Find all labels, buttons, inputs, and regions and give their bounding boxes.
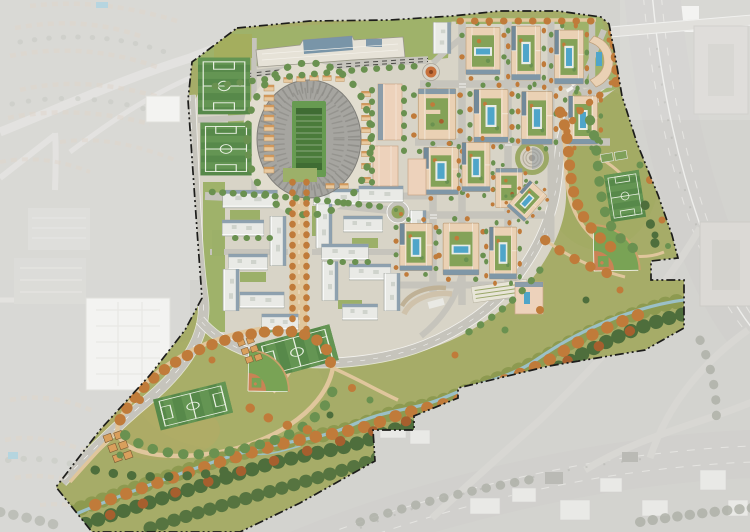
office-building: [240, 292, 284, 308]
pink-roof-solar: [378, 84, 383, 140]
office-building: [322, 244, 369, 260]
office-building: [359, 186, 403, 202]
roundabout-island: [392, 206, 405, 219]
office-building: [344, 216, 383, 232]
swimming-pool: [596, 52, 602, 66]
residential-block: [506, 19, 546, 87]
residential-block: [393, 217, 438, 277]
roundabout-tree: [399, 212, 403, 216]
office-building-north: [433, 22, 451, 53]
office-building: [229, 254, 268, 270]
soccer-field: [604, 170, 646, 222]
master-plan-aerial-map: [0, 0, 750, 532]
office-building: [384, 273, 400, 310]
residential-block: [411, 82, 463, 146]
residential-block: [467, 82, 514, 149]
residential-block: [457, 136, 496, 198]
wash-extra-northeast: [620, 0, 750, 120]
plaza-green-median: [283, 168, 317, 182]
pink-building: [408, 159, 426, 195]
residential-block: [549, 23, 589, 91]
residential-block: [459, 21, 506, 81]
roundabout: [387, 201, 409, 223]
pavilion-roof-peak: [429, 70, 433, 74]
office-building: [270, 216, 286, 265]
soccer-field: [200, 123, 251, 176]
office-building: [223, 269, 239, 311]
endzone: [296, 108, 322, 115]
office-building: [342, 304, 377, 320]
office-building: [322, 262, 338, 301]
residential-block: [516, 84, 559, 151]
residential-block: [436, 216, 486, 282]
master-plan-screenshot: [0, 0, 750, 532]
pink-building: [373, 146, 398, 186]
swimming-pool: [524, 292, 530, 304]
soccer-field: [198, 58, 250, 115]
round-pavilion-circle: [423, 64, 440, 81]
roundabout-tree: [394, 208, 398, 212]
office-building: [222, 220, 264, 236]
residential-block: [484, 220, 522, 286]
